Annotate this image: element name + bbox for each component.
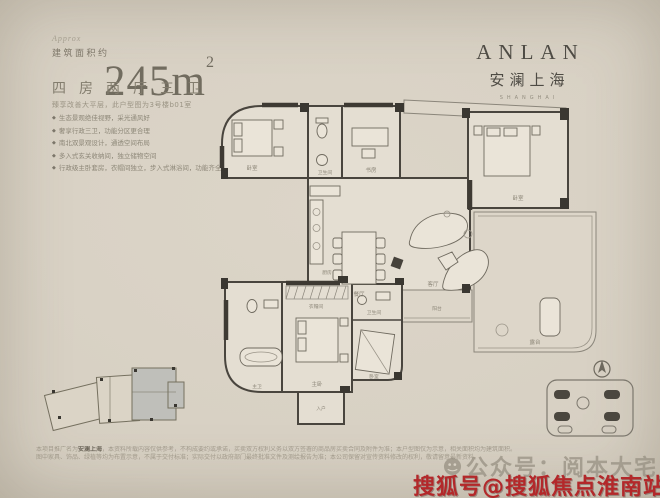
room-label: 卫生间	[318, 169, 333, 176]
bed-icon	[355, 330, 394, 374]
floor-plan: 卧室 卫生间 书房 卧室 厨房 餐厅 客厅 衣帽间 主卫 主卧 卫生间 卧室 阳…	[0, 0, 660, 498]
room-label: 露台	[529, 338, 541, 346]
room-label: 衣帽间	[309, 303, 324, 310]
bath1-room	[308, 106, 342, 178]
room-label: 餐厅	[353, 290, 365, 298]
floorplan-poster: Approx 建筑面积约 245m2 四房两厅三卫 臻享改善大平层，此户型图为3…	[0, 0, 660, 498]
room-label: 主卫	[252, 383, 262, 390]
bed-icon	[474, 126, 540, 176]
room-label: 卧室	[369, 373, 379, 380]
room-label: 厨房	[322, 269, 332, 276]
room-label: 卧室	[246, 164, 258, 172]
balcony	[402, 290, 472, 322]
room-label: 卫生间	[367, 309, 382, 316]
sohu-watermark: 搜狐号@搜狐焦点淮南站	[413, 469, 660, 498]
disclaimer-bold: 安澜上海	[78, 446, 102, 453]
room-label: 书房	[365, 166, 377, 174]
room-label: 卧室	[512, 194, 524, 202]
room-label: 入户	[316, 405, 326, 412]
room-label: 主卧	[311, 380, 323, 388]
key-plan	[45, 367, 184, 430]
stack-diagram	[547, 380, 633, 436]
room-label: 客厅	[427, 280, 439, 288]
room-label: 阳台	[432, 305, 442, 312]
compass-icon	[594, 360, 610, 377]
terrace	[474, 212, 596, 352]
